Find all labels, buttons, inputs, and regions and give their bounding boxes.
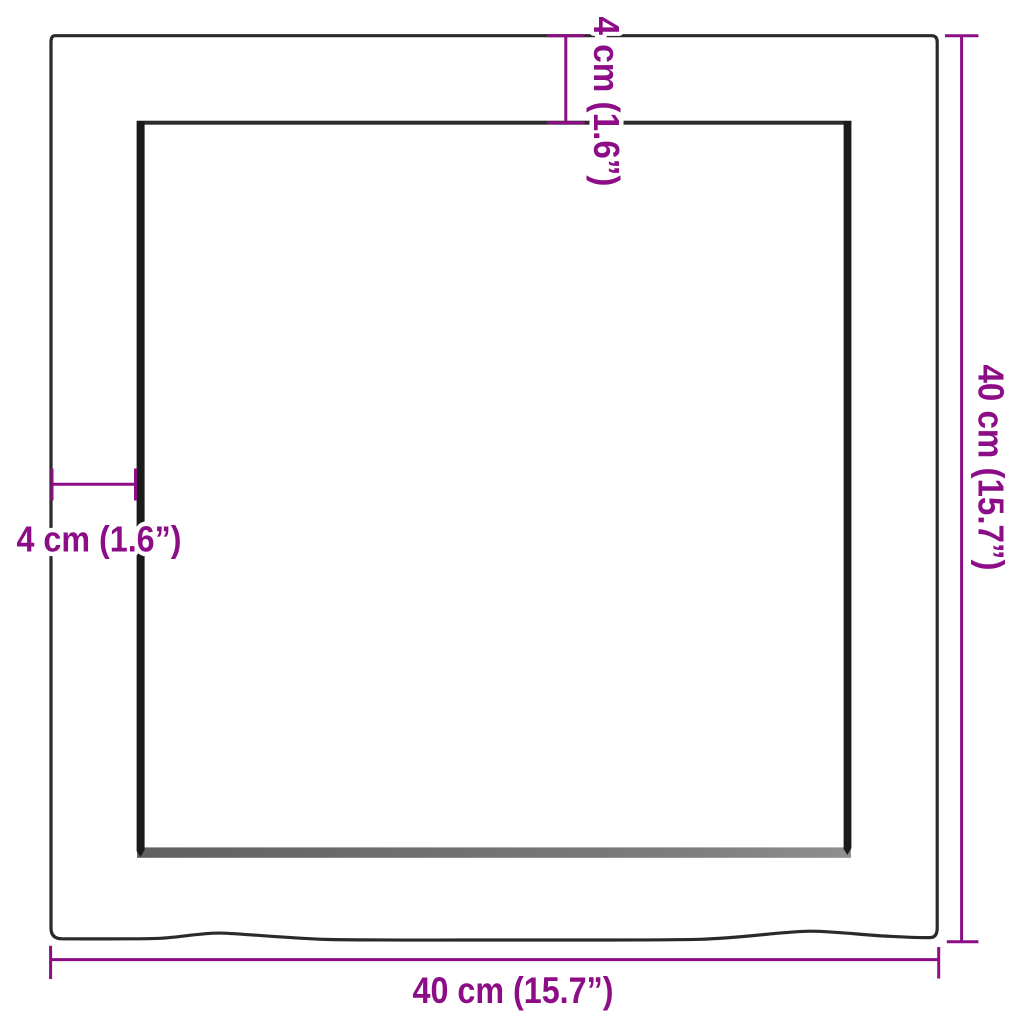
svg-text:4 cm (1.6”): 4 cm (1.6”): [586, 17, 627, 187]
svg-text:4 cm (1.6”): 4 cm (1.6”): [17, 519, 182, 560]
svg-text:40 cm (15.7”): 40 cm (15.7”): [413, 969, 614, 1011]
svg-text:40 cm (15.7”): 40 cm (15.7”): [971, 365, 1012, 571]
